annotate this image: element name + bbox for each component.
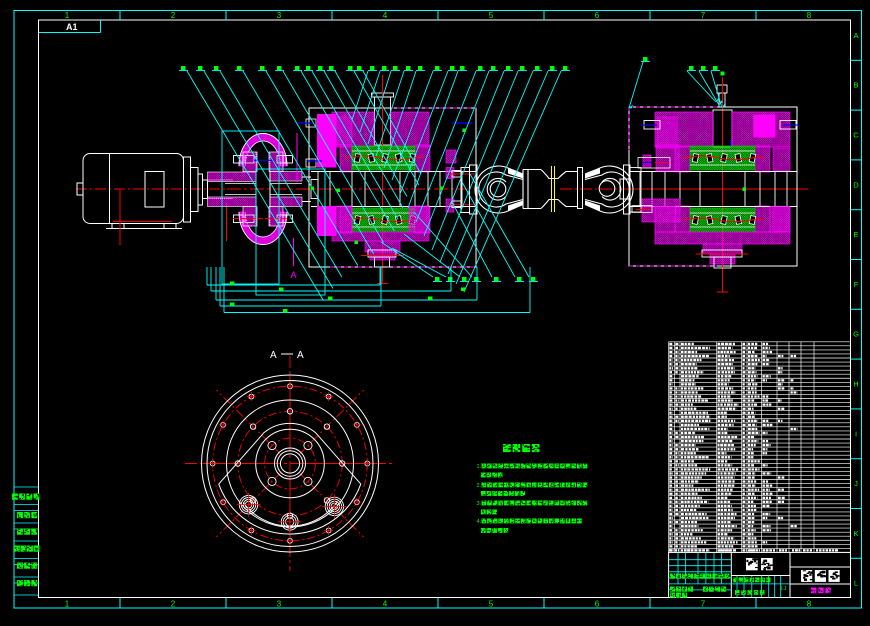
svg-text:6: 6	[595, 600, 600, 609]
svg-text:C: C	[853, 131, 859, 140]
svg-text:8: 8	[807, 11, 812, 20]
svg-text:L: L	[854, 579, 858, 588]
svg-text:3.: 3.	[477, 501, 482, 507]
svg-text:D: D	[853, 180, 859, 189]
svg-text:G: G	[853, 330, 859, 339]
svg-text:A1: A1	[66, 22, 78, 32]
svg-text:A: A	[270, 350, 277, 361]
svg-text:1.: 1.	[477, 464, 482, 470]
svg-text:2.: 2.	[477, 483, 482, 489]
svg-text:7: 7	[701, 600, 706, 609]
svg-text:6: 6	[595, 11, 600, 20]
svg-text:3: 3	[277, 11, 282, 20]
svg-text:E: E	[853, 230, 858, 239]
svg-text:5: 5	[489, 600, 494, 609]
svg-text:F: F	[854, 280, 859, 289]
svg-text:LJ: LJ	[781, 586, 787, 592]
svg-text:A: A	[297, 350, 304, 361]
svg-text:4.: 4.	[477, 519, 482, 525]
svg-text:7: 7	[701, 11, 706, 20]
svg-text:J: J	[854, 479, 858, 488]
svg-text:1: 1	[65, 11, 70, 20]
svg-text:5: 5	[489, 11, 494, 20]
svg-text:A: A	[853, 31, 858, 40]
svg-text:2: 2	[171, 600, 176, 609]
svg-text:8: 8	[807, 600, 812, 609]
svg-text:4: 4	[383, 600, 388, 609]
svg-text:4: 4	[383, 11, 388, 20]
svg-text:A: A	[290, 270, 296, 280]
svg-text:3: 3	[277, 600, 282, 609]
svg-text:1: 1	[65, 600, 70, 609]
svg-text:K: K	[853, 529, 858, 538]
svg-text:B: B	[853, 81, 858, 90]
svg-text:H: H	[853, 380, 858, 389]
svg-text:I: I	[855, 429, 857, 438]
svg-text:2: 2	[171, 11, 176, 20]
